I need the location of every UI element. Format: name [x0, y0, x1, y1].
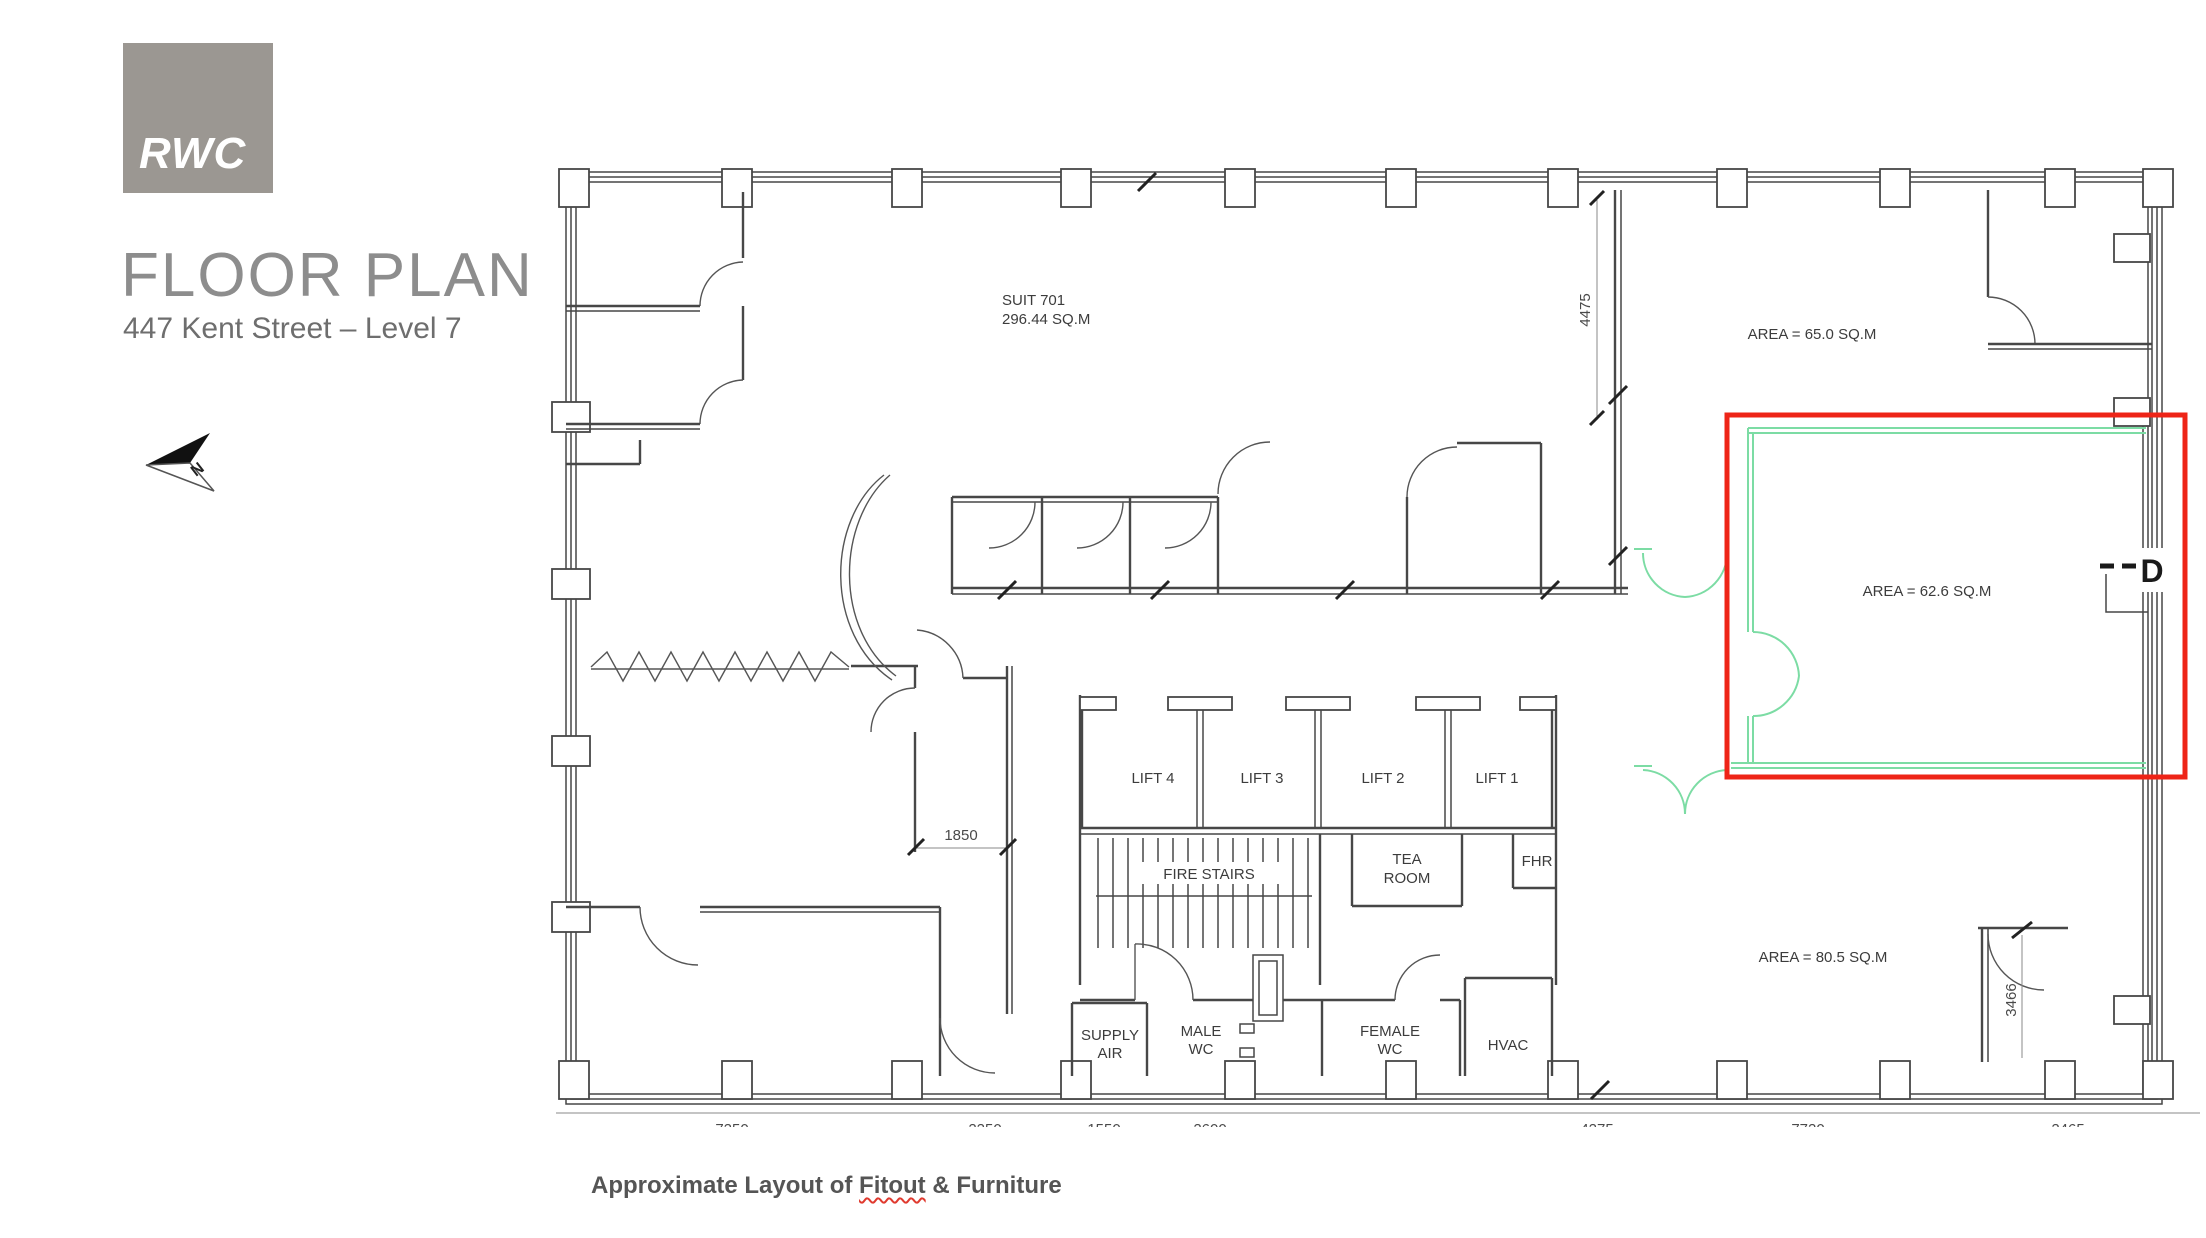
- dim-4475: 4475: [1577, 293, 1594, 326]
- fire-stair-treads: [1098, 838, 1308, 948]
- suite-area-label: 296.44 SQ.M: [1002, 311, 1090, 328]
- area-62-label: AREA = 62.6 SQ.M: [1863, 583, 1992, 600]
- interior-walls-left: [566, 475, 1012, 1076]
- female-wc-label-2: WC: [1378, 1041, 1403, 1058]
- lift-core: [1080, 695, 1556, 985]
- lift-1-label: LIFT 1: [1475, 770, 1518, 787]
- tea-room-label-1: TEA: [1392, 851, 1421, 868]
- lift-2-label: LIFT 2: [1361, 770, 1404, 787]
- suite-name-label: SUIT 701: [1002, 292, 1065, 309]
- zigzag-partition: [591, 652, 849, 681]
- supply-air-label-1: SUPPLY: [1081, 1027, 1139, 1044]
- lift-4-label: LIFT 4: [1131, 770, 1174, 787]
- tea-room-label-2: ROOM: [1384, 870, 1431, 887]
- bottom-dimension-line: 7250 2250 1550 2600 4275 7720 2465: [545, 1113, 2205, 1171]
- outer-walls: [566, 172, 2162, 1104]
- plan-labels: SUIT 701 296.44 SQ.M AREA = 65.0 SQ.M AR…: [1002, 292, 1991, 1062]
- fhr-label: FHR: [1522, 853, 1553, 870]
- green-lobby-doors: [1634, 549, 1727, 814]
- lift-3-label: LIFT 3: [1240, 770, 1283, 787]
- meeting-rooms-walls: [952, 442, 1628, 594]
- area-65-label: AREA = 65.0 SQ.M: [1748, 326, 1877, 343]
- male-wc-label-1: MALE: [1181, 1023, 1222, 1040]
- dim-1850: 1850: [944, 827, 977, 844]
- caption: Approximate Layout of Fitout & Furniture: [591, 1172, 1062, 1200]
- supply-air-label-2: AIR: [1097, 1045, 1122, 1062]
- dim-1850-group: 1850: [908, 827, 1016, 855]
- area-80-label: AREA = 80.5 SQ.M: [1759, 949, 1888, 966]
- suite-boundary-wall: 4475: [1577, 190, 1621, 594]
- top-right-room-walls: [1988, 190, 2152, 349]
- caption-suffix: & Furniture: [926, 1172, 1062, 1199]
- door-ticks: [998, 173, 1627, 1099]
- caption-underlined-word: Fitout: [859, 1172, 926, 1199]
- structural-columns: [552, 169, 2173, 1099]
- floor-plan: 4475: [0, 0, 2206, 1238]
- interior-walls-top-left: [566, 192, 743, 464]
- door-d-label: D: [2140, 553, 2163, 589]
- door-d-group: D: [2092, 548, 2164, 612]
- dim-3466: 3466: [2003, 983, 2020, 1016]
- hvac-label: HVAC: [1488, 1037, 1529, 1054]
- female-wc-label-1: FEMALE: [1360, 1023, 1420, 1040]
- bottom-right-walls: 3466: [1978, 922, 2068, 1062]
- caption-prefix: Approximate Layout of: [591, 1172, 859, 1199]
- male-wc-label-2: WC: [1189, 1041, 1214, 1058]
- fire-stairs-label: FIRE STAIRS: [1163, 866, 1254, 883]
